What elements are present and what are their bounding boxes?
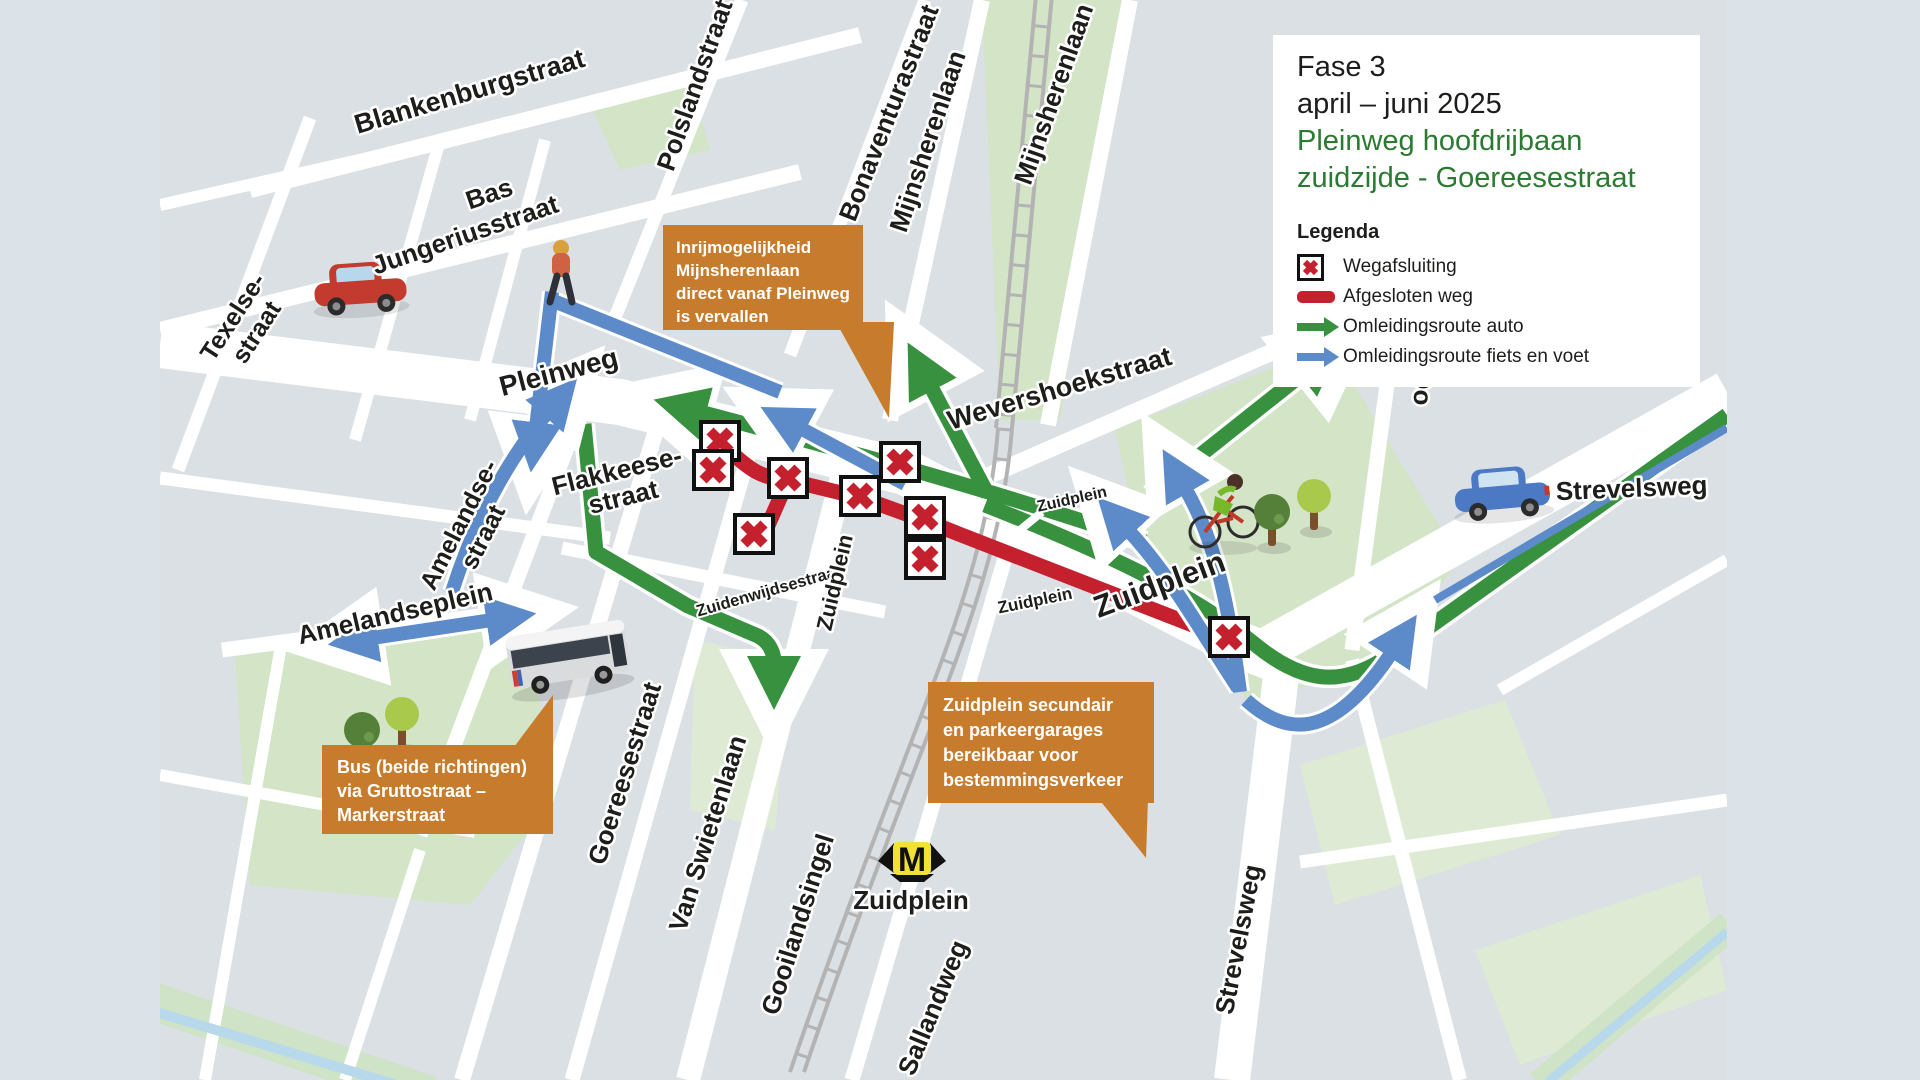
callout-zuidplein-secundair: Zuidplein secundair en parkeergarages be…: [928, 682, 1154, 803]
callout-inrijmogelijkheid: Inrijmogelijkheid Mijnsherenlaan direct …: [663, 225, 863, 330]
callout-line: Zuidplein secundair: [943, 693, 1139, 718]
phase-subtitle-1: Pleinweg hoofdrijbaan: [1297, 123, 1682, 160]
legend-title: Legenda: [1297, 221, 1682, 244]
legend-label: Afgesloten weg: [1343, 286, 1473, 308]
legend-row-omleidingsroute-auto: Omleidingsroute auto: [1297, 312, 1682, 342]
closure-x-icon: [1297, 254, 1343, 281]
closure-x-icon: [881, 443, 919, 481]
legend-row-omleidingsroute-fiets: Omleidingsroute fiets en voet: [1297, 342, 1682, 372]
legend-label: Omleidingsroute fiets en voet: [1343, 346, 1589, 368]
metro-station-label: Zuidplein: [853, 885, 969, 915]
callout-line: is vervallen: [676, 305, 850, 328]
phase-subtitle-2: zuidzijde - Goereesestraat: [1297, 160, 1682, 197]
legend-row-wegafsluiting: Wegafsluiting: [1297, 252, 1682, 282]
callout-line: Inrijmogelijkheid: [676, 236, 850, 259]
callout-line: Mijnsherenlaan: [676, 259, 850, 282]
callout-line: bereikbaar voor: [943, 743, 1139, 768]
callout-line: via Gruttostraat –: [337, 779, 538, 803]
roadworks-map-infographic: M Blankenburgstraat Bas Jungeriusstraat …: [0, 0, 1920, 1080]
phase-title: Fase 3: [1297, 49, 1682, 86]
blue-arrow-icon: [1297, 347, 1343, 367]
closure-x-icon: [906, 540, 944, 578]
legend-label: Omleidingsroute auto: [1343, 316, 1524, 338]
callout-line: Bus (beide richtingen): [337, 755, 538, 779]
callout-line: bestemmingsverkeer: [943, 768, 1139, 793]
legend-row-afgesloten-weg: Afgesloten weg: [1297, 282, 1682, 312]
green-arrow-icon: [1297, 317, 1343, 337]
callout-line: en parkeergarages: [943, 718, 1139, 743]
closure-x-icon: [906, 498, 944, 536]
legend-label: Wegafsluiting: [1343, 256, 1457, 278]
phase-period: april – juni 2025: [1297, 86, 1682, 123]
callout-bus-route: Bus (beide richtingen) via Gruttostraat …: [322, 745, 553, 834]
closure-x-icon: [735, 515, 773, 553]
svg-text:M: M: [898, 841, 926, 879]
closure-x-icon: [694, 451, 732, 489]
closed-road-icon: [1297, 291, 1343, 303]
closure-x-icon: [1210, 618, 1248, 656]
closure-x-icon: [841, 477, 879, 515]
info-panel: Fase 3 april – juni 2025 Pleinweg hoofdr…: [1273, 35, 1700, 387]
callout-line: direct vanaf Pleinweg: [676, 282, 850, 305]
callout-line: Markerstraat: [337, 803, 538, 827]
closure-x-icon: [769, 459, 807, 497]
